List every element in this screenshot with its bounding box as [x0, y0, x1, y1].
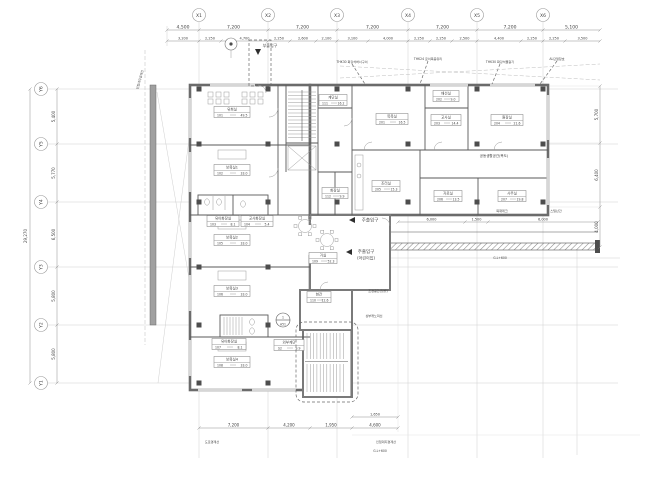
- room-code: 107: [215, 345, 221, 349]
- grid-bubble-x-label: X6: [540, 13, 546, 19]
- room-label: 교사실20314.4: [431, 115, 461, 126]
- room-area: 52.3: [328, 259, 335, 263]
- rear-entrance-arrow-icon: [255, 49, 261, 55]
- floor-plan-sheet: 4,5007,2007,2007,2007,2007,2005,1003,200…: [0, 0, 652, 488]
- dim-text: 1,950: [325, 422, 337, 427]
- room-area: 9.0: [451, 97, 456, 101]
- column: [266, 200, 271, 205]
- room-code: 102: [217, 171, 223, 175]
- finish-note: AL단열창호: [549, 56, 564, 61]
- column: [335, 200, 340, 205]
- retaining-wall: [150, 85, 156, 325]
- dim-text: 2,600: [298, 36, 308, 40]
- column: [541, 142, 546, 147]
- room-name: 거실: [320, 253, 326, 258]
- room-code: 202: [436, 97, 442, 101]
- room-label: 배선실2029.0: [433, 91, 459, 102]
- room-area: 16.2: [338, 101, 345, 105]
- dim-text: 2,250: [549, 36, 559, 40]
- grid-bubble-y-label: Y3: [39, 264, 45, 271]
- dim-text: 4,000: [383, 36, 393, 40]
- room-label: 원장실20421.6: [491, 115, 523, 126]
- column: [406, 87, 411, 92]
- detail-marker-num: 1: [282, 316, 284, 320]
- room-area: 21.6: [514, 121, 521, 125]
- site-note: G.L+600: [373, 449, 387, 453]
- room-code: 204: [494, 121, 500, 125]
- corridor-note: 공동생활공간(복도): [480, 153, 509, 158]
- room-label: 현관11012.6: [307, 292, 331, 303]
- dim-text: 5,700: [594, 108, 599, 120]
- room-name: 계단실: [328, 95, 338, 100]
- room-name: 원장실: [502, 115, 512, 120]
- dim-text: 3,100: [347, 36, 357, 40]
- room-label: 자료실20613.5: [434, 191, 462, 202]
- dim-text: 5,100: [565, 24, 578, 30]
- site-note: G.L+600: [493, 256, 507, 260]
- dim-text: 2,500: [459, 36, 469, 40]
- dim-text: 3,500: [577, 36, 587, 40]
- grid-bubble-y-label: Y6: [39, 86, 45, 93]
- room-name: 보육실4: [226, 357, 239, 362]
- column: [197, 265, 202, 270]
- room-name: 교사실: [441, 115, 451, 120]
- room-code: 108: [217, 363, 223, 367]
- room-name: 현관: [316, 292, 323, 297]
- grid-bubble-y-label: Y5: [39, 141, 45, 148]
- dim-text: 4,500: [177, 24, 190, 30]
- room-area: 49.5: [241, 113, 248, 117]
- room-area: 15.3: [391, 187, 398, 191]
- room-name: 자료실: [443, 191, 453, 196]
- room-area: 16.5: [399, 120, 406, 124]
- dim-text: 6,000: [538, 217, 548, 221]
- grid-bubble-x-label: X4: [405, 13, 411, 19]
- room-label: 거실10952.3: [309, 253, 337, 264]
- dim-text: 7,200: [228, 422, 240, 427]
- column: [406, 200, 411, 205]
- wall-opening: [308, 225, 312, 255]
- room-name: 목욕실: [387, 114, 397, 119]
- dim-text: 2,250: [274, 36, 284, 40]
- grid-bubble-y-label: Y4: [39, 199, 45, 206]
- site-note: 스틸난간: [550, 208, 562, 213]
- room-label: 외부계단S29.9: [274, 340, 304, 351]
- dim-text: 5,800: [51, 348, 56, 360]
- dim-text: 7,200: [366, 24, 379, 30]
- room-area: 33.0: [241, 241, 248, 245]
- room-area: 8.1: [238, 345, 243, 349]
- detail-marker-sheet: A51: [280, 323, 286, 327]
- room-name: 유아화장실: [221, 339, 237, 344]
- finish-note: THK24 로이복층유리: [413, 56, 442, 61]
- site-note: 조경공간(텃밭): [368, 288, 388, 293]
- dim-text: 5,400: [51, 110, 56, 122]
- dim-text: 2,100: [321, 36, 331, 40]
- dim-text: 2,250: [414, 36, 424, 40]
- site-note: 인접대지경계선: [135, 69, 145, 90]
- dim-text: 6,400: [594, 169, 599, 181]
- room-code: 206: [437, 197, 443, 201]
- room-name: 교사화장실: [249, 216, 265, 221]
- room-code: 106: [217, 292, 223, 296]
- room-code: 109: [312, 259, 318, 263]
- room-label: 보육실410833.0: [214, 357, 250, 368]
- column: [475, 87, 480, 92]
- room-label: 보육실310633.0: [214, 286, 250, 297]
- column: [335, 142, 340, 147]
- detail-marker: 1A51: [276, 313, 290, 327]
- room-label: 유아화장실1078.1: [212, 339, 246, 350]
- room-area: 8.1: [231, 222, 236, 226]
- dim-text: 3,200: [178, 36, 188, 40]
- dim-text: 4,700: [239, 36, 249, 40]
- site-note: 상부캐노피선: [365, 313, 382, 318]
- room-code: 205: [375, 187, 381, 191]
- column: [197, 323, 202, 328]
- grid-bubble-x-label: X2: [265, 13, 271, 19]
- column: [406, 142, 411, 147]
- room-code: 203: [434, 121, 440, 125]
- room-area: 19.8: [517, 197, 524, 201]
- room-name: 보육실3: [226, 286, 238, 291]
- grid-bubble-x-label: X5: [474, 13, 480, 19]
- site-note: 목재데크: [496, 208, 508, 213]
- leader-cross: [340, 66, 600, 80]
- column: [475, 200, 480, 205]
- room-label: 조리실20515.3: [372, 181, 400, 192]
- column: [266, 142, 271, 147]
- column: [475, 142, 480, 147]
- grid-bubble-x-label: X1: [196, 13, 202, 19]
- column: [197, 142, 202, 147]
- site-note: 인접대지경계선: [376, 439, 396, 444]
- dim-text: 4,400: [494, 36, 504, 40]
- entrance-label: 부출입구: [263, 42, 278, 48]
- room-code: 101: [217, 113, 223, 117]
- room-name: 유희실: [227, 107, 237, 112]
- room-area: 33.0: [241, 363, 248, 367]
- room-label: 계단실11116.2: [319, 95, 347, 106]
- room-code: S2: [278, 346, 282, 350]
- dim-text: 4,200: [283, 422, 295, 427]
- column: [266, 381, 271, 386]
- dim-text: 2,250: [527, 36, 537, 40]
- room-name: 보육실1: [226, 165, 238, 170]
- dim-text: 4,600: [369, 422, 381, 427]
- drain-marker-dot: [229, 42, 232, 45]
- site-note: 도로경계선: [205, 439, 219, 444]
- grid-bubble-x-label: X3: [334, 13, 340, 19]
- dim-text: 6,500: [51, 228, 56, 240]
- room-label: 보육실210533.0: [214, 235, 250, 246]
- dim-text: 2,250: [205, 36, 215, 40]
- room-label: 유아화장실1038.1: [207, 216, 239, 227]
- room-name: 사무실: [507, 191, 517, 196]
- column: [197, 200, 202, 205]
- dim-text: 5,770: [51, 167, 56, 179]
- leader: [420, 61, 428, 84]
- room-area: 13.5: [453, 197, 460, 201]
- leader-cross: [340, 64, 600, 78]
- room-name: 화장실: [330, 188, 340, 193]
- entrance-label: 주출입구: [362, 217, 379, 224]
- room-name: 배선실: [441, 91, 451, 96]
- floor-plan-drawing: 4,5007,2007,2007,2007,2007,2005,1003,200…: [0, 0, 652, 488]
- entrance-label: (어린이집): [357, 255, 375, 261]
- finish-note: THK30 화강석버너구이: [335, 59, 367, 64]
- leader: [540, 61, 557, 84]
- room-code: 111: [322, 101, 328, 105]
- column: [197, 87, 202, 92]
- room-area: 12.6: [322, 298, 329, 302]
- column: [541, 200, 546, 205]
- dim-text: 4,000: [594, 221, 599, 233]
- walkway-end-post: [595, 240, 600, 253]
- dim-text: 1,500: [471, 217, 481, 221]
- column: [197, 381, 202, 386]
- room-label: 목욕실20116.5: [376, 114, 408, 125]
- grid-bubble-y-label: Y1: [39, 380, 45, 387]
- dim-text: 1,650: [370, 412, 380, 416]
- entrance-label: 주출입구: [358, 248, 375, 255]
- room-area: 5.4: [265, 222, 270, 226]
- room-area: 9.9: [340, 194, 345, 198]
- dim-text: 2,250: [436, 36, 446, 40]
- room-code: 110: [310, 298, 316, 302]
- dim-text: 7,200: [504, 24, 517, 30]
- room-name: 외부계단: [283, 340, 297, 345]
- room-label: 화장실1129.9: [322, 188, 348, 199]
- room-code: 207: [501, 197, 507, 201]
- room-label: 보육실110233.0: [214, 165, 250, 176]
- room-code: 103: [210, 222, 216, 226]
- room-area: 14.4: [452, 121, 459, 125]
- grid-bubble-y-label: Y2: [39, 322, 45, 329]
- dim-text: 7,200: [227, 24, 240, 30]
- column: [266, 323, 271, 328]
- dim-text: 5,800: [51, 290, 56, 302]
- room-name: 보육실2: [226, 235, 238, 240]
- room-label: 유희실10149.5: [214, 107, 250, 118]
- room-label: 교사화장실1045.4: [241, 216, 273, 227]
- dim-total-text: 29,270: [23, 229, 28, 243]
- room-area: 33.0: [241, 292, 248, 296]
- room-code: 104: [244, 222, 250, 226]
- room-code: 201: [379, 120, 385, 124]
- room-name: 유아화장실: [215, 216, 231, 221]
- room-name: 조리실: [381, 181, 391, 186]
- column: [266, 265, 271, 270]
- room-code: 112: [325, 194, 331, 198]
- dim-text: 7,200: [436, 24, 449, 30]
- column: [541, 87, 546, 92]
- room-label: 사무실20719.8: [498, 191, 526, 202]
- column: [335, 87, 340, 92]
- finish-note: THK30 화강석물갈기: [485, 59, 514, 64]
- dim-text: 7,200: [296, 24, 309, 30]
- room-code: 105: [217, 241, 223, 245]
- room-area: 33.0: [241, 171, 248, 175]
- dim-text: 6,000: [426, 217, 436, 221]
- column: [266, 87, 271, 92]
